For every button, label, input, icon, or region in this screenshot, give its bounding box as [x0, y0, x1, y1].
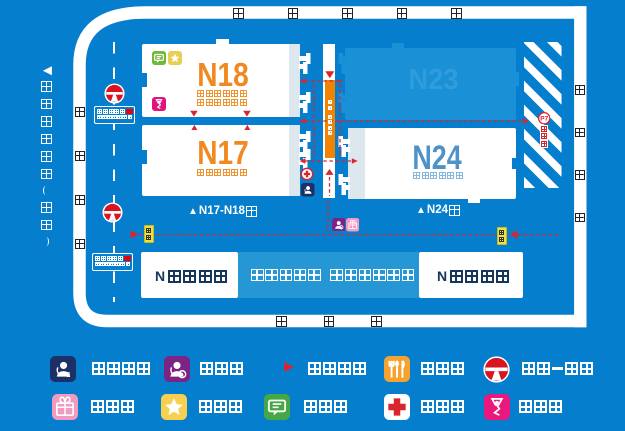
- svg-text:P7: P7: [540, 115, 548, 122]
